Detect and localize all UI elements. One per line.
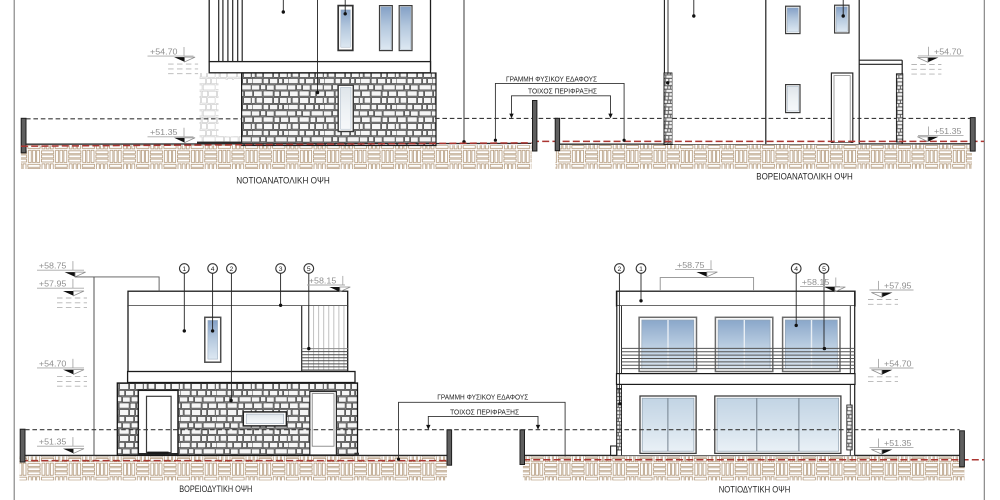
svg-text:ΤΟΙΧΟΣ ΠΕΡΙΦΡΑΞΗΣ: ΤΟΙΧΟΣ ΠΕΡΙΦΡΑΞΗΣ — [528, 87, 597, 96]
svg-text:+58.15: +58.15 — [309, 276, 337, 285]
svg-text:4: 4 — [794, 266, 798, 273]
svg-text:5: 5 — [307, 266, 311, 273]
svg-text:ΓΡΑΜΜΗ ΦΥΣΙΚΟΥ ΕΔΑΦΟΥΣ: ΓΡΑΜΜΗ ΦΥΣΙΚΟΥ ΕΔΑΦΟΥΣ — [437, 393, 528, 402]
svg-text:1: 1 — [182, 266, 186, 273]
svg-text:+54.70: +54.70 — [884, 359, 912, 368]
svg-text:+51.35: +51.35 — [884, 439, 912, 448]
svg-text:+58.15: +58.15 — [802, 278, 830, 287]
svg-text:4: 4 — [211, 266, 215, 273]
svg-text:+54.70: +54.70 — [934, 47, 962, 56]
svg-text:+54.70: +54.70 — [150, 48, 178, 57]
svg-text:+57.95: +57.95 — [39, 280, 67, 289]
svg-text:ΤΟΙΧΟΣ ΠΕΡΙΦΡΑΞΗΣ: ΤΟΙΧΟΣ ΠΕΡΙΦΡΑΞΗΣ — [450, 407, 519, 416]
svg-text:+57.95: +57.95 — [884, 281, 912, 290]
svg-text:1: 1 — [639, 266, 643, 273]
svg-text:+51.35: +51.35 — [934, 127, 962, 136]
svg-text:3: 3 — [279, 266, 283, 273]
svg-text:2: 2 — [618, 266, 622, 273]
svg-text:ΒΟΡΕΙΟΑΝΑΤΟΛΙΚΗ ΟΨΗ: ΒΟΡΕΙΟΑΝΑΤΟΛΙΚΗ ΟΨΗ — [756, 172, 853, 182]
svg-text:ΒΟΡΕΙΟΔΥΤΙΚΗ ΟΨΗ: ΒΟΡΕΙΟΔΥΤΙΚΗ ΟΨΗ — [179, 483, 252, 494]
svg-text:+58.75: +58.75 — [39, 262, 67, 271]
svg-text:ΓΡΑΜΜΗ ΦΥΣΙΚΟΥ ΕΔΑΦΟΥΣ: ΓΡΑΜΜΗ ΦΥΣΙΚΟΥ ΕΔΑΦΟΥΣ — [506, 74, 597, 83]
svg-text:ΝΟΤΙΟΔΥΤΙΚΗ ΟΨΗ: ΝΟΤΙΟΔΥΤΙΚΗ ΟΨΗ — [719, 483, 791, 494]
svg-text:2: 2 — [230, 266, 234, 273]
svg-text:ΝΟΤΙΟΑΝΑΤΟΛΙΚΗ ΟΨΗ: ΝΟΤΙΟΑΝΑΤΟΛΙΚΗ ΟΨΗ — [236, 175, 330, 185]
svg-text:+58.75: +58.75 — [677, 261, 705, 270]
svg-text:5: 5 — [822, 266, 826, 273]
svg-text:+54.70: +54.70 — [39, 359, 67, 368]
svg-text:+51.35: +51.35 — [39, 438, 67, 447]
svg-text:+51.35: +51.35 — [150, 128, 178, 137]
